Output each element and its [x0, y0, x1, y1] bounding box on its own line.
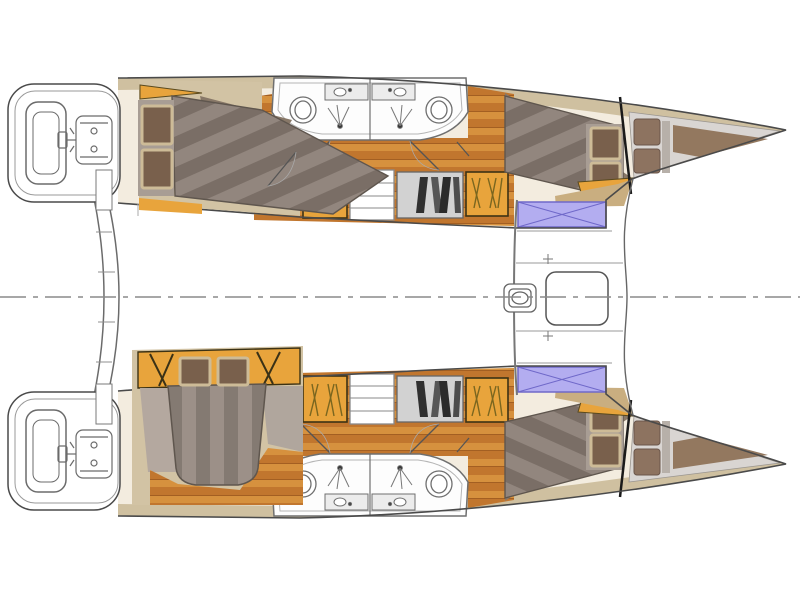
cabin-owner-bottom: owner cabin with island double berth, he… — [132, 346, 303, 505]
deck-hatch: lavender deck hatch with X cross bracing — [518, 367, 606, 392]
pillow — [591, 435, 620, 466]
transom-seat — [26, 410, 66, 492]
side-panel-right — [262, 386, 303, 452]
pillow — [591, 128, 620, 159]
stern-platform: rounded transom swim platform with seat … — [8, 384, 120, 510]
locker-right — [466, 378, 508, 422]
deck-hatch: lavender deck hatch with X cross bracing — [518, 202, 606, 227]
pillow — [142, 150, 172, 188]
hull-top: port hull with aft double cabin, bathroo… — [8, 76, 786, 228]
pillow — [218, 358, 248, 385]
forepeak: bow storage / skipper berth area beyond … — [629, 416, 780, 482]
pillow — [180, 358, 210, 385]
pillow — [142, 106, 172, 144]
locker-left — [303, 376, 347, 422]
davit-strut — [96, 170, 112, 210]
locker-right — [466, 172, 508, 216]
book-shelf — [397, 172, 463, 218]
transom-seat — [26, 102, 66, 184]
davit-strut — [96, 384, 112, 424]
catamaran-floor-plan: curved aft crossbeam with boarding steps… — [0, 0, 800, 600]
floor-plan-canvas: curved aft crossbeam with boarding steps… — [0, 0, 800, 600]
windlass: anchor windlass fitting on centerline — [504, 284, 536, 312]
bed-owner — [168, 384, 266, 485]
stairs — [350, 374, 394, 424]
book-shelf — [397, 376, 463, 422]
forepeak: bow storage / skipper berth area beyond … — [629, 112, 780, 178]
stern-platform: rounded transom swim platform with seat … — [8, 84, 120, 210]
hull-bottom: starboard hull with owner island-bed cab… — [8, 366, 786, 518]
companionway: stairs flanked by orange lockers and a g… — [303, 374, 508, 424]
